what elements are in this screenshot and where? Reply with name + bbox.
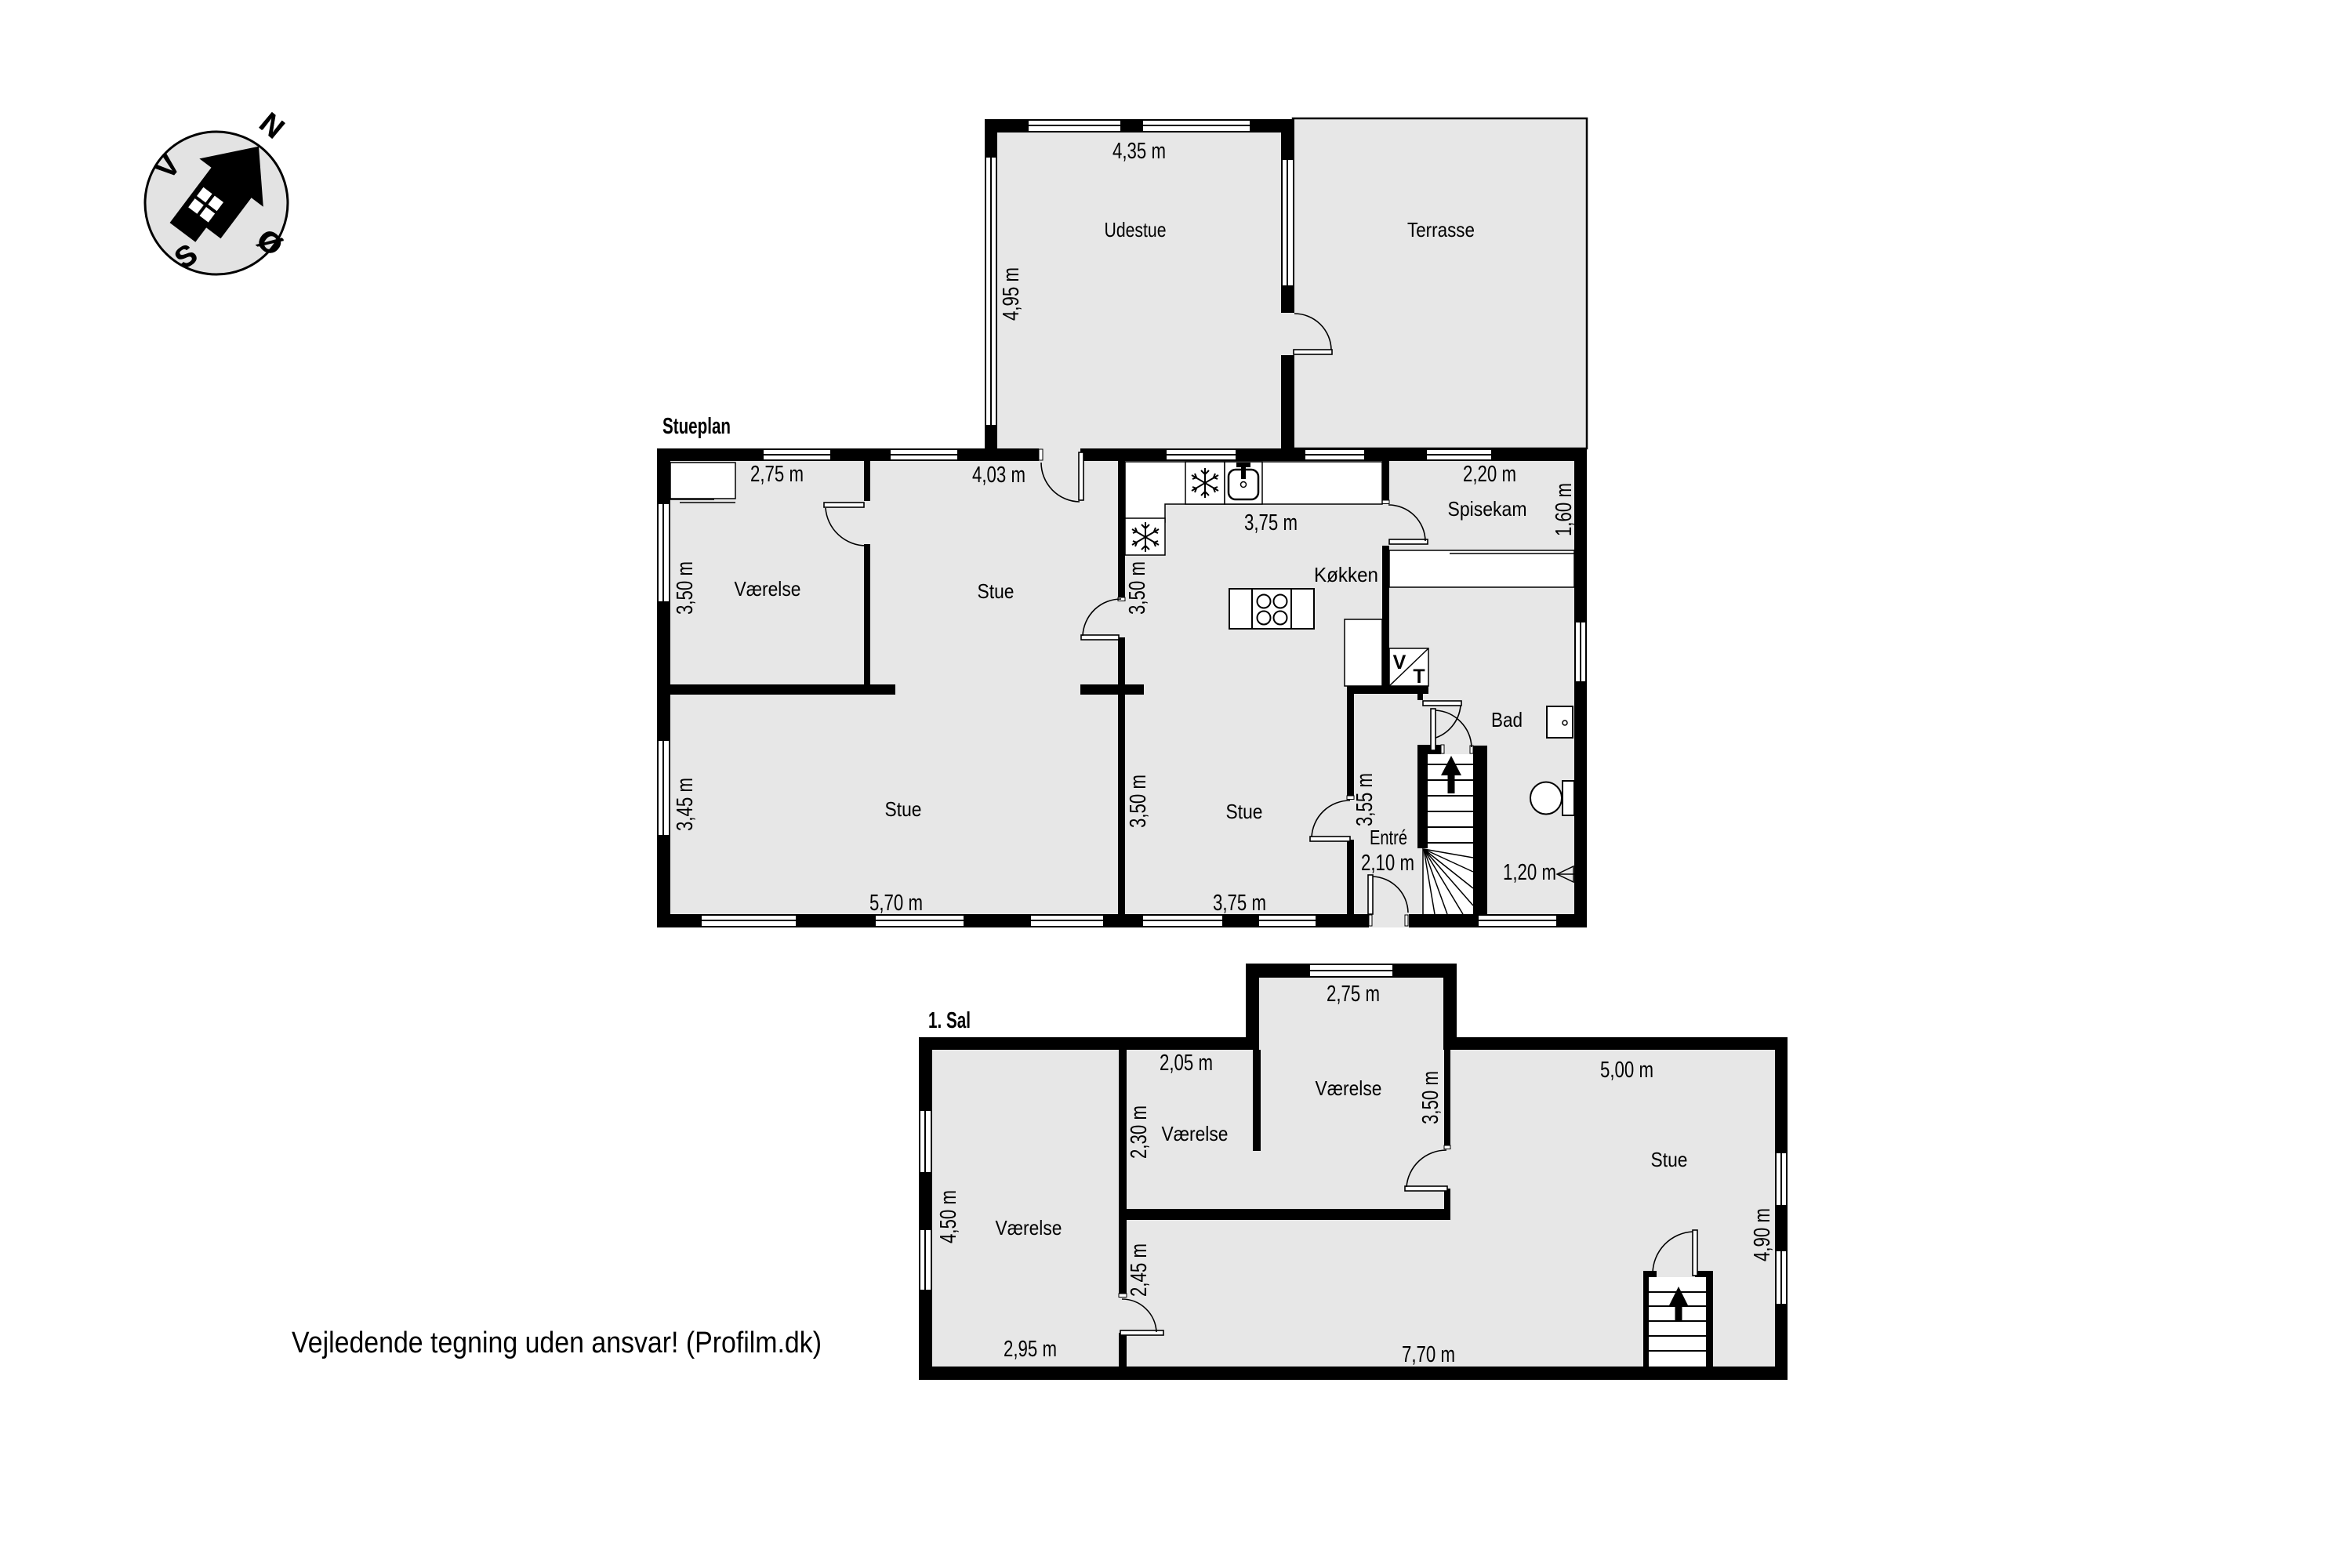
svg-text:Køkken: Køkken [1314,563,1378,586]
svg-text:4,95 m: 4,95 m [999,267,1024,321]
svg-text:4,90 m: 4,90 m [1750,1208,1775,1261]
svg-text:3,50 m: 3,50 m [673,561,698,615]
svg-text:Stue: Stue [885,797,922,821]
svg-text:2,95 m: 2,95 m [1004,1337,1057,1362]
svg-text:5,70 m: 5,70 m [869,891,923,916]
svg-text:2,75 m: 2,75 m [750,462,804,487]
svg-text:2,20 m: 2,20 m [1463,462,1516,487]
svg-text:2,75 m: 2,75 m [1327,982,1380,1007]
svg-text:Vejledende tegning uden ansvar: Vejledende tegning uden ansvar! (Profilm… [292,1327,822,1359]
svg-text:1,20 m: 1,20 m [1503,860,1556,885]
svg-text:Stue: Stue [1651,1148,1688,1171]
svg-text:2,45 m: 2,45 m [1127,1243,1152,1297]
svg-text:3,50 m: 3,50 m [1125,561,1150,615]
svg-text:Stue: Stue [978,579,1014,603]
svg-text:2,05 m: 2,05 m [1160,1051,1213,1076]
svg-text:3,55 m: 3,55 m [1352,773,1377,826]
svg-text:Terrasse: Terrasse [1407,218,1475,241]
svg-text:3,50 m: 3,50 m [1126,775,1151,828]
svg-text:Stueplan: Stueplan [662,414,731,439]
svg-text:Værelse: Værelse [1162,1122,1229,1145]
svg-text:3,45 m: 3,45 m [673,778,698,831]
svg-text:2,10 m: 2,10 m [1361,851,1414,876]
svg-text:N: N [252,107,290,146]
svg-text:5,00 m: 5,00 m [1600,1058,1653,1083]
svg-text:3,75 m: 3,75 m [1213,891,1266,916]
svg-text:1,60 m: 1,60 m [1552,483,1577,536]
svg-text:Værelse: Værelse [1316,1076,1382,1100]
svg-text:7,70 m: 7,70 m [1402,1342,1455,1367]
svg-text:Udestue: Udestue [1105,218,1167,241]
svg-text:Stue: Stue [1226,800,1263,823]
svg-text:Entré: Entré [1370,826,1407,849]
svg-text:3,50 m: 3,50 m [1418,1071,1443,1124]
svg-text:4,35 m: 4,35 m [1112,139,1166,164]
svg-text:Spisekam: Spisekam [1448,497,1527,521]
svg-text:3,75 m: 3,75 m [1244,510,1298,535]
svg-text:V: V [1393,652,1406,673]
svg-text:4,03 m: 4,03 m [972,463,1025,488]
svg-text:Bad: Bad [1491,708,1523,731]
svg-text:Værelse: Værelse [735,577,801,601]
svg-text:4,50 m: 4,50 m [936,1190,961,1243]
svg-text:Værelse: Værelse [996,1216,1062,1240]
svg-text:1. Sal: 1. Sal [928,1008,971,1033]
svg-text:T: T [1413,666,1425,688]
svg-text:2,30 m: 2,30 m [1127,1105,1152,1159]
